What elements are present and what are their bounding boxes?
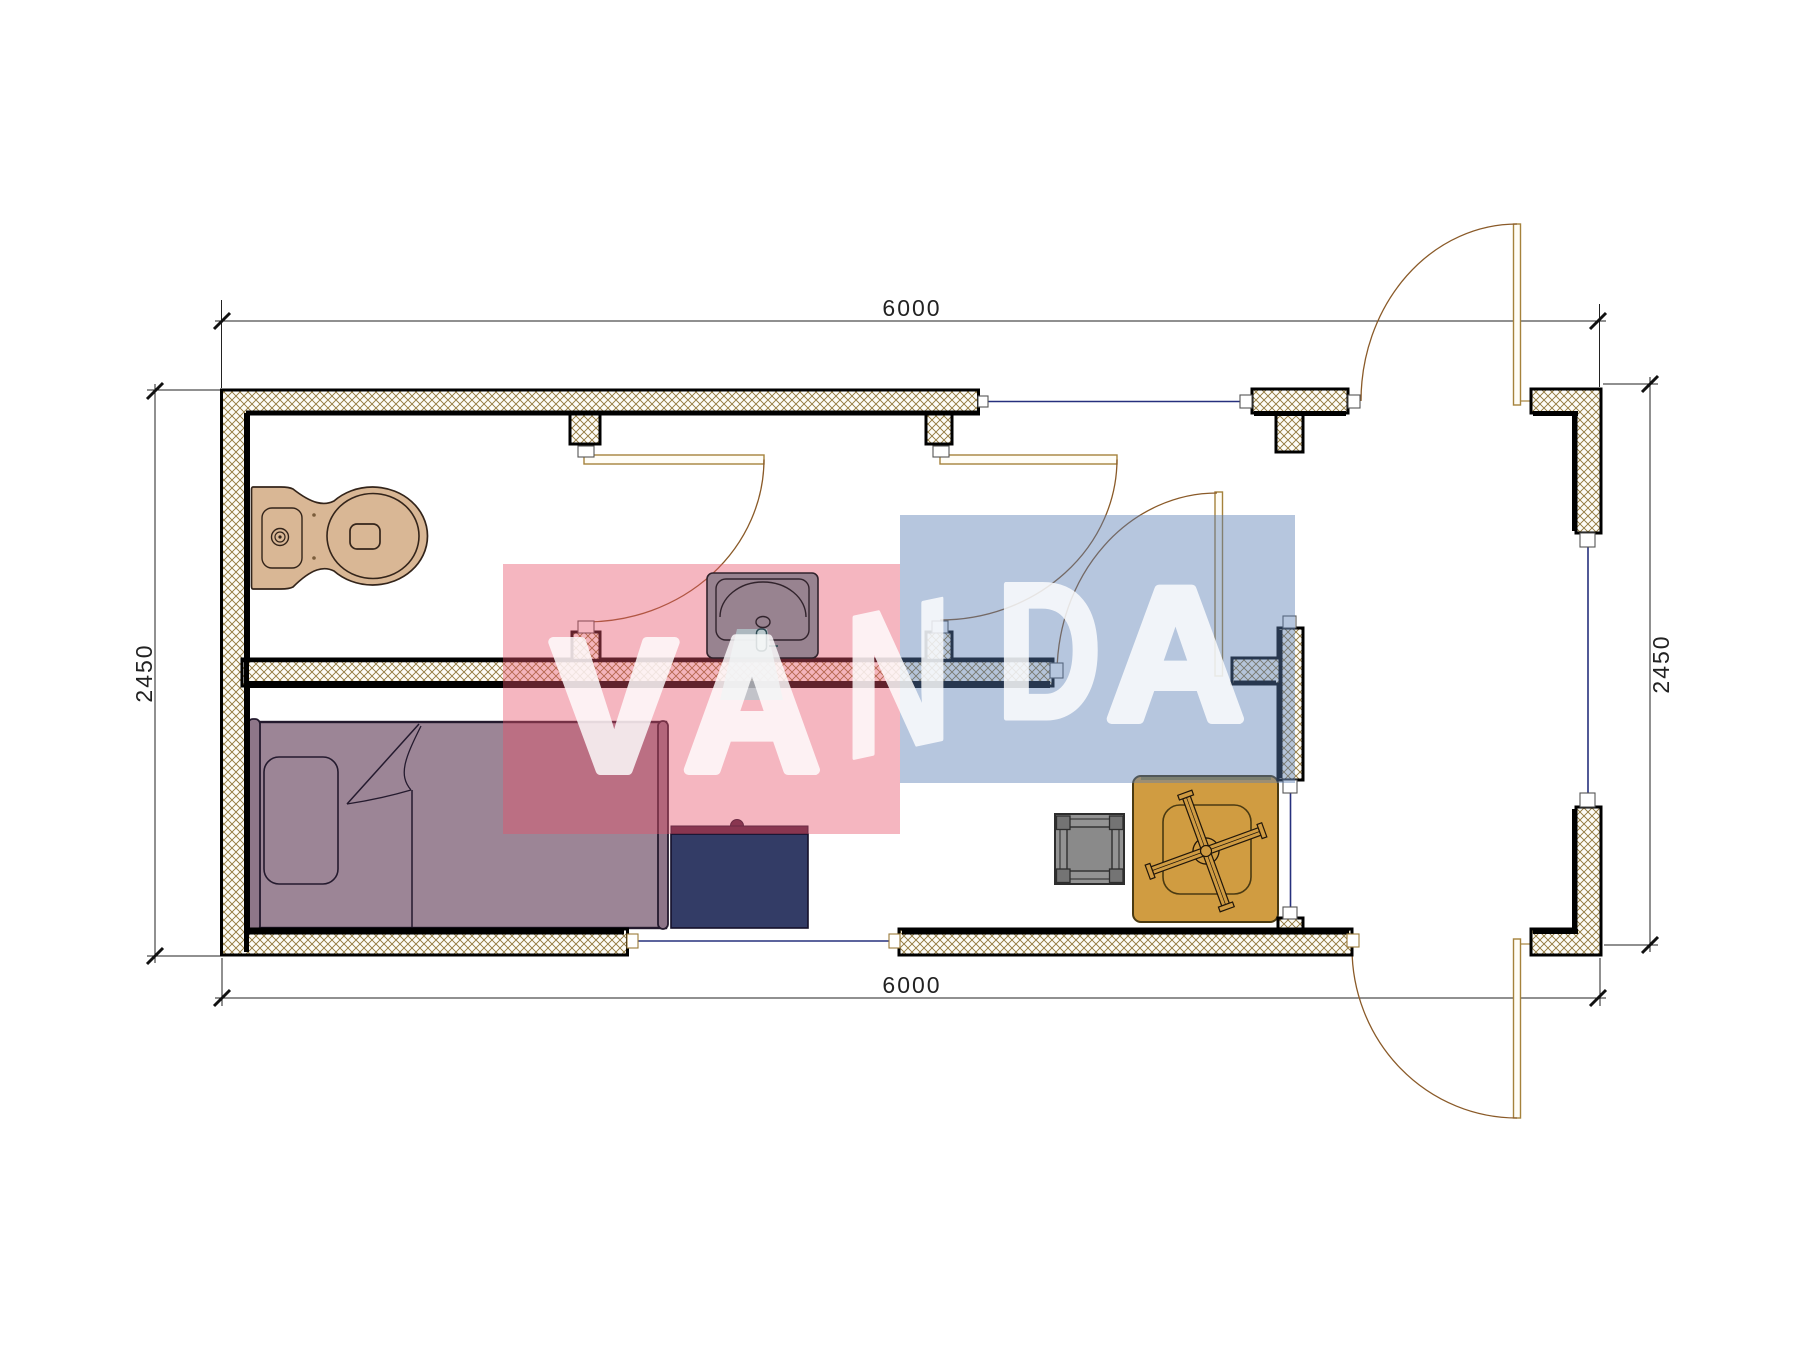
svg-text:D: D — [996, 543, 1102, 760]
svg-text:V: V — [552, 603, 676, 810]
svg-text:N: N — [844, 552, 952, 803]
svg-text:6000: 6000 — [882, 295, 941, 321]
svg-text:2450: 2450 — [131, 643, 157, 702]
svg-text:A: A — [1107, 549, 1244, 759]
svg-text:6000: 6000 — [882, 972, 941, 998]
svg-text:A: A — [684, 599, 820, 811]
svg-text:2450: 2450 — [1648, 634, 1674, 693]
